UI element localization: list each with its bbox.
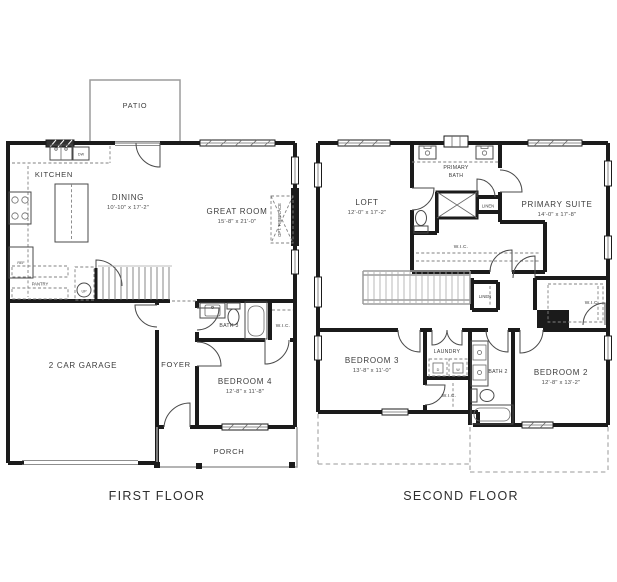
bath2-vanity bbox=[471, 341, 488, 386]
foyer-label: FOYER bbox=[161, 360, 191, 369]
bedroom2-label: BEDROOM 2 bbox=[534, 368, 588, 377]
bath2-toilet-icon bbox=[471, 389, 494, 402]
second-floor-caption: SECOND FLOOR bbox=[403, 489, 519, 503]
kitchen-island bbox=[55, 184, 88, 242]
bedroom3-dims: 13'-8" x 11'-0" bbox=[353, 368, 391, 374]
bath3-toilet-icon bbox=[227, 303, 240, 325]
first-floor-plan: PATIO bbox=[8, 80, 299, 503]
laundry-label: LAUNDRY bbox=[434, 349, 461, 355]
bath3-bathtub-icon bbox=[245, 302, 267, 339]
dishwasher: DW bbox=[73, 147, 89, 160]
wic-primary-rods bbox=[416, 253, 540, 261]
wic-bedroom3-label: W.I.C. bbox=[442, 393, 457, 399]
bedroom2-dims: 12'-8" x 13'-2" bbox=[542, 380, 581, 386]
loft-dims: 12'-0" x 17'-2" bbox=[348, 210, 387, 216]
great-room-dims: 15'-8" x 21'-0" bbox=[218, 219, 257, 225]
floor-plan-drawing: PATIO bbox=[0, 0, 617, 582]
patio-label: PATIO bbox=[123, 101, 148, 110]
second-floor-plan: D W bbox=[315, 136, 612, 503]
bedroom4-window bbox=[222, 424, 268, 430]
great-room-window-right-upper bbox=[292, 157, 299, 184]
bedroom3-label: BEDROOM 3 bbox=[345, 356, 399, 365]
wic-primary-label: W.I.C. bbox=[454, 244, 469, 250]
primary-shower bbox=[437, 192, 477, 218]
primary-toilet-icon bbox=[414, 211, 428, 234]
dining-label: DINING bbox=[112, 193, 144, 202]
opt-fireplace: OPT. FIREPLACE bbox=[271, 196, 293, 243]
linen-lower-label: LINEN bbox=[479, 294, 491, 299]
dryer-label: D bbox=[437, 368, 440, 372]
refrigerator: REF bbox=[9, 247, 33, 278]
bath3-label: BATH 3 bbox=[219, 323, 238, 329]
stairs-second-floor bbox=[363, 271, 470, 304]
dryer-icon: D bbox=[429, 359, 447, 376]
primary-bath-vanity bbox=[412, 146, 500, 162]
kitchen-label: KITCHEN bbox=[35, 170, 73, 179]
bedroom4-dims: 12'-8" x 11'-8" bbox=[226, 389, 264, 395]
porch-label: PORCH bbox=[214, 447, 245, 456]
roof-outline-below bbox=[318, 414, 608, 472]
primary-bath-label-2: BATH bbox=[449, 173, 463, 179]
wic-bedroom4-label: W.I.C. bbox=[276, 323, 291, 329]
stairs-up-label: UP bbox=[81, 289, 87, 293]
garage-door bbox=[22, 461, 138, 465]
pantry-label: PANTRY bbox=[32, 282, 49, 287]
opt-fireplace-label: OPT. FIREPLACE bbox=[277, 203, 282, 237]
washer-icon: W bbox=[449, 359, 467, 376]
great-room-label: GREAT ROOM bbox=[207, 207, 268, 216]
bedroom4-label: BEDROOM 4 bbox=[218, 377, 272, 386]
primary-suite-dims: 14'-0" x 17'-8" bbox=[538, 212, 577, 218]
patio-door bbox=[136, 143, 160, 167]
pantry-shelves: PANTRY bbox=[12, 266, 68, 299]
bath2-label: BATH 2 bbox=[488, 369, 507, 375]
stairs-first-floor: UP bbox=[75, 266, 197, 301]
great-room-window-top bbox=[200, 140, 275, 146]
washer-label: W bbox=[456, 368, 460, 372]
chase bbox=[537, 310, 569, 328]
dining-dims: 10'-10" x 17'-2" bbox=[107, 205, 149, 211]
garage-label: 2 CAR GARAGE bbox=[49, 361, 117, 370]
first-floor-caption: FIRST FLOOR bbox=[109, 489, 206, 503]
primary-suite-label: PRIMARY SUITE bbox=[521, 200, 592, 209]
dishwasher-label: DW bbox=[78, 153, 85, 157]
bath3-vanity bbox=[200, 303, 225, 318]
patio-outline: PATIO bbox=[90, 80, 180, 143]
primary-bath-label-1: PRIMARY bbox=[443, 165, 469, 171]
linen-upper-label: LINEN bbox=[482, 204, 494, 209]
wic-bedroom2-label: W.I.C. bbox=[585, 300, 600, 306]
great-room-window-right-lower bbox=[292, 250, 299, 274]
loft-label: LOFT bbox=[355, 198, 378, 207]
refrigerator-label: REF bbox=[17, 261, 25, 265]
floor-plan-sheet: PATIO bbox=[0, 0, 617, 582]
